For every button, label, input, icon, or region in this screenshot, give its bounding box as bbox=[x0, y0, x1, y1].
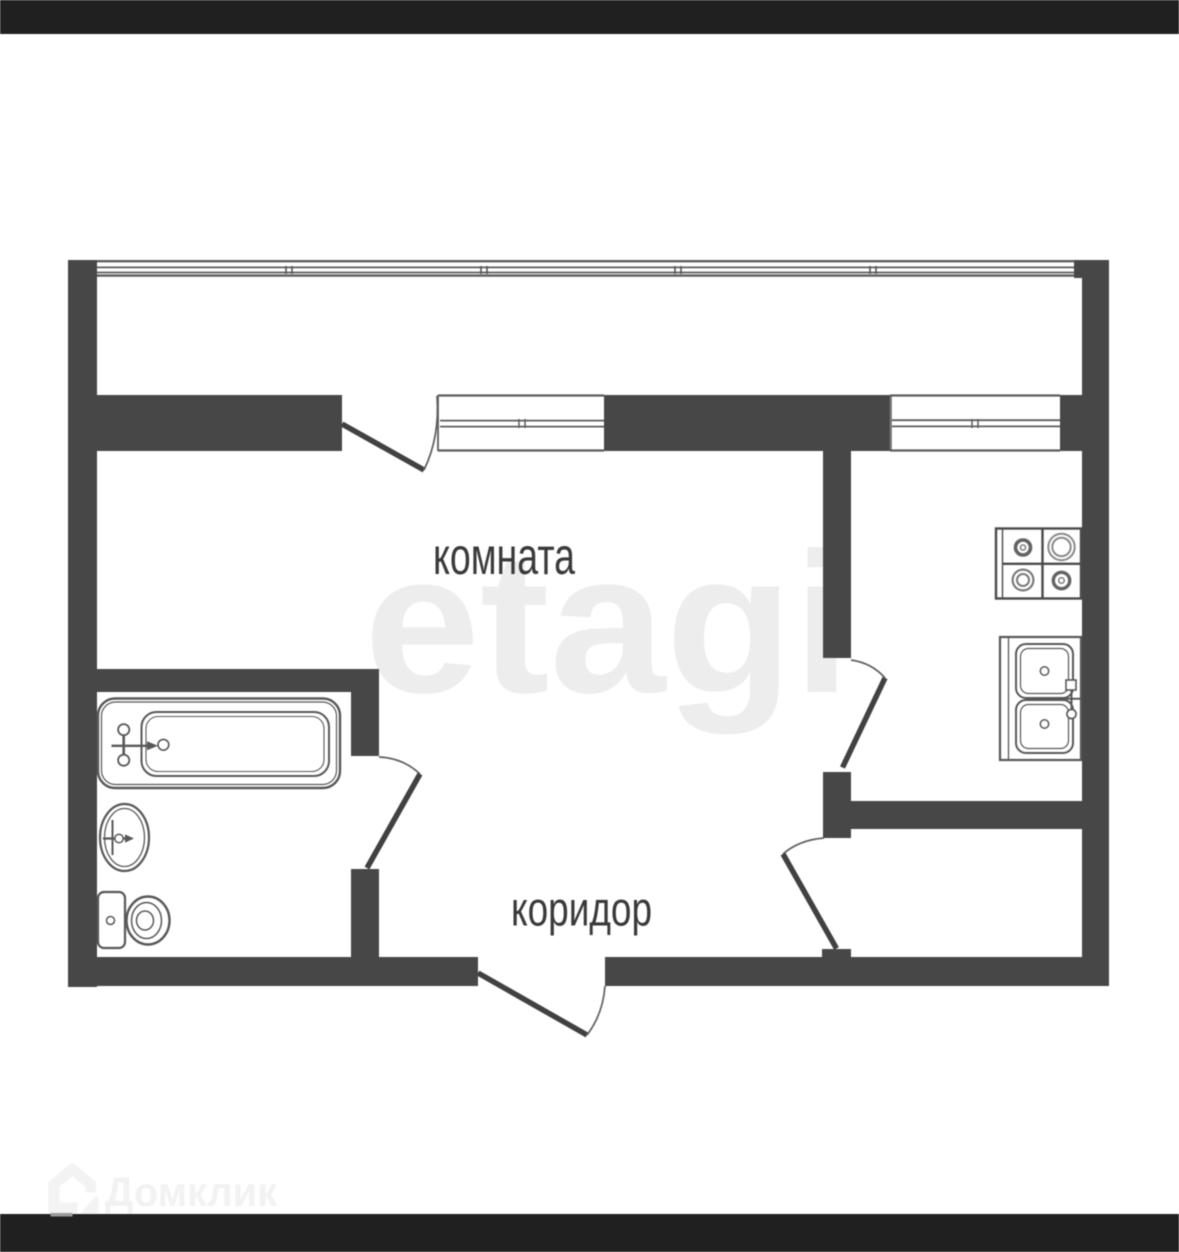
svg-text:Домклик: Домклик bbox=[105, 1169, 277, 1215]
svg-text:комната: комната bbox=[433, 528, 575, 586]
svg-text:коридор: коридор bbox=[511, 884, 652, 937]
